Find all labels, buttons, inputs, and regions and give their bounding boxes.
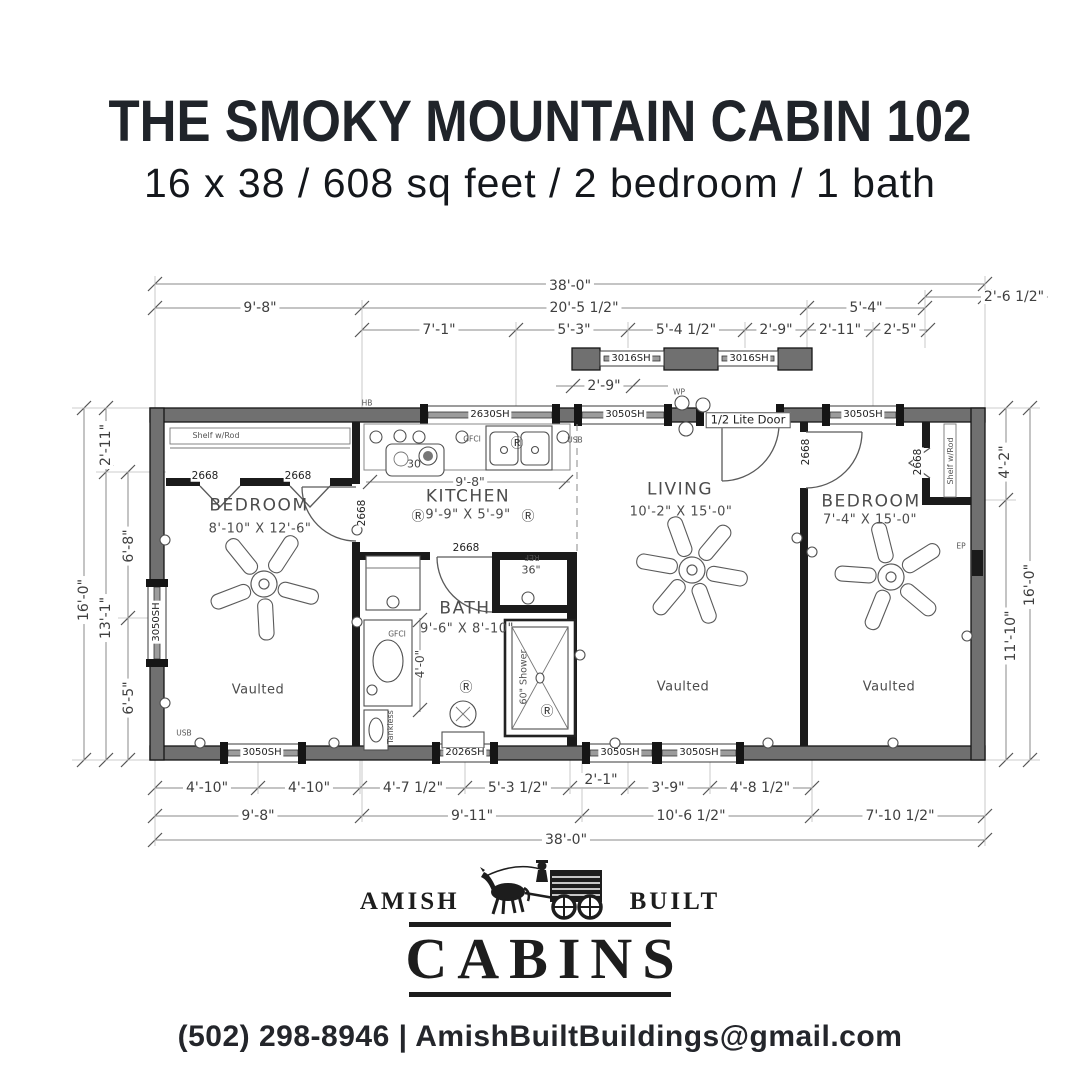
refrigerator-label: REF [524, 553, 539, 561]
dimension-label: 2'-11" [816, 323, 864, 337]
dimension-label: 4'-10" [183, 781, 231, 795]
room-name-label: BEDROOM [821, 494, 920, 511]
vaulted-ceiling-label: Vaulted [863, 681, 916, 694]
dimension-label: 7'-10 1/2" [862, 809, 937, 823]
dimension-label: 6'-5" [122, 678, 136, 717]
window-size-label: 3016SH [609, 354, 652, 364]
room-size-label: 9'-6" X 8'-10" [420, 623, 514, 636]
dimension-lines [72, 276, 1048, 847]
dimension-label: 38'-0" [546, 279, 594, 293]
dimension-label: 5'-4" [846, 301, 885, 315]
dimension-label: 11'-10" [1004, 608, 1018, 665]
shower-label: 60" Shower [519, 650, 529, 705]
transom-wall-row [572, 348, 812, 370]
fixture-label: Tankless [387, 710, 395, 744]
contact-divider: | [399, 1020, 408, 1053]
logo-word-left: AMISH [360, 888, 460, 920]
dimension-label: 10'-6 1/2" [653, 809, 728, 823]
dimension-label: 2'-1" [581, 773, 620, 787]
dimension-label: 16'-0" [77, 576, 91, 624]
dimension-label: 2'-5" [880, 323, 919, 337]
receptacle-icon: Ⓡ [510, 438, 523, 451]
logo-brand-name: CABINS [405, 929, 684, 990]
room-name-label: LIVING [647, 482, 713, 499]
dimension-label: 4'-0" [414, 650, 426, 678]
window-size-label: 3050SH [603, 410, 646, 420]
outlet-label: GFCI [463, 435, 481, 443]
dimension-label: 5'-3" [554, 323, 593, 337]
window-size-label: 3050SH [240, 748, 283, 758]
room-size-label: 10'-2" X 15'-0" [630, 506, 733, 519]
outlet-label: GFCI [388, 630, 406, 638]
fixture-label: Shelf w/Rod [947, 437, 955, 484]
company-logo: AMISH [0, 856, 1080, 997]
vaulted-ceiling-label: Vaulted [232, 684, 285, 697]
flyer-page: THE SMOKY MOUNTAIN CABIN 102 16 x 38 / 6… [0, 0, 1080, 1080]
dimension-label: 4'-2" [998, 442, 1012, 481]
dimension-label: 13'-1" [99, 594, 113, 642]
dimension-label: 2'-9" [584, 379, 623, 393]
dimension-label: 16'-0" [1023, 561, 1037, 609]
receptacle-icon: Ⓡ [459, 682, 472, 695]
phone-number: (502) 298-8946 [178, 1020, 390, 1053]
window-size-label: 3016SH [727, 354, 770, 364]
room-name-label: BATH [439, 601, 490, 618]
dimension-label: 2'-11" [99, 421, 113, 469]
fixture-label: 30 [407, 459, 421, 470]
dimension-label: 5'-3 1/2" [485, 781, 551, 795]
shelf-label: Shelf w/Rod [192, 432, 239, 440]
room-name-label: BEDROOM [209, 498, 308, 515]
room-size-label: 7'-4" X 15'-0" [823, 514, 917, 527]
bath-fixtures [364, 556, 575, 750]
outlet-label: WP [673, 388, 685, 396]
email-address: AmishBuiltBuildings@gmail.com [415, 1020, 902, 1053]
dimension-label: 4'-7 1/2" [380, 781, 446, 795]
room-name-label: KITCHEN [426, 489, 510, 506]
fixture-label: 36" [521, 565, 540, 576]
vaulted-ceiling-label: Vaulted [657, 681, 710, 694]
window-size-label: 3050SH [677, 748, 720, 758]
window-size-label: 2026SH [443, 748, 486, 758]
window-size-label: 3050SH [841, 410, 884, 420]
receptacle-icon: Ⓡ [540, 706, 553, 719]
room-size-label: 8'-10" X 12'-6" [209, 523, 312, 536]
room-size-label: 9'-9" X 5'-9" [425, 509, 510, 522]
logo-divider-bottom [409, 992, 671, 997]
logo-word-right: BUILT [630, 888, 721, 920]
dimension-label: 6'-8" [122, 526, 136, 565]
dimension-label: 5'-4 1/2" [653, 323, 719, 337]
door-size-label: 2668 [913, 448, 924, 477]
window-size-label: 3050SH [152, 600, 162, 643]
front-door-label: 1/2 Lite Door [706, 412, 791, 428]
outlet-label: EP [956, 542, 965, 550]
horse-and-wagon-icon [470, 856, 620, 920]
dimension-label: 2'-6 1/2" [981, 290, 1047, 304]
door-size-label: 2668 [452, 543, 481, 554]
door-size-label: 2668 [357, 499, 368, 528]
window-size-label: 3050SH [598, 748, 641, 758]
contact-bar: (502) 298-8946 | AmishBuiltBuildings@gma… [0, 1020, 1080, 1054]
dimension-label: 9'-8" [238, 809, 277, 823]
outlet-label: USB [567, 436, 582, 444]
door-size-label: 2668 [284, 471, 313, 482]
dimension-label: 7'-1" [419, 323, 458, 337]
receptacle-icon: Ⓡ [411, 511, 424, 524]
dimension-label: 3'-9" [648, 781, 687, 795]
door-size-label: 2668 [191, 471, 220, 482]
dimension-label: 4'-8 1/2" [727, 781, 793, 795]
dimension-label: 9'-8" [240, 301, 279, 315]
dimension-label: 38'-0" [542, 833, 590, 847]
door-size-label: 2668 [801, 438, 812, 467]
dimension-label: 2'-9" [756, 323, 795, 337]
outlet-label: USB [176, 729, 191, 737]
outlet-label: HB [362, 399, 373, 407]
dimension-label: 20'-5 1/2" [546, 301, 621, 315]
dimension-label: 4'-10" [285, 781, 333, 795]
window-size-label: 2630SH [468, 410, 511, 420]
dimension-label: 9'-11" [448, 809, 496, 823]
receptacle-icon: Ⓡ [521, 511, 534, 524]
